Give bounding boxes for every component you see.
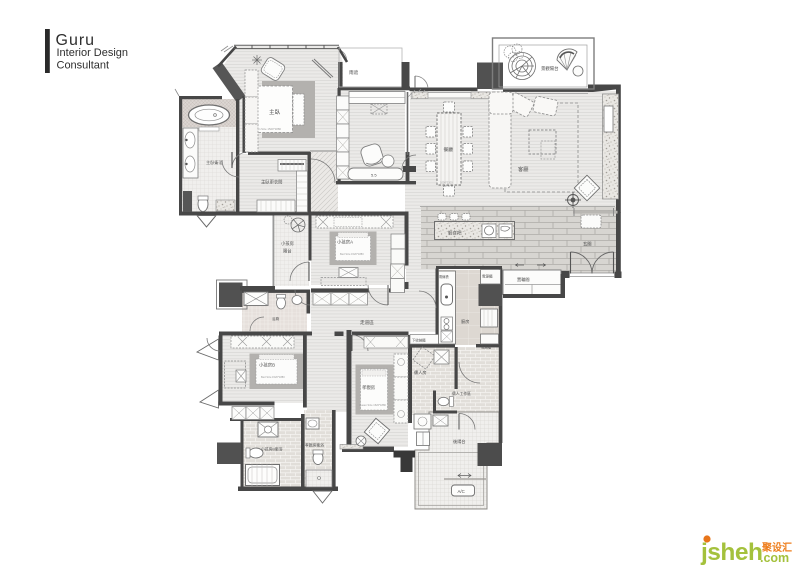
svg-text:傭人工作區: 傭人工作區 [452,391,471,396]
svg-text:.com: .com [760,551,789,565]
svg-text:5.5: 5.5 [371,173,377,178]
svg-text:小孩房A: 小孩房A [337,239,353,246]
svg-text:餐廳: 餐廳 [444,146,454,153]
svg-text:主臥衛浴: 主臥衛浴 [206,159,224,166]
svg-text:電源櫃: 電源櫃 [482,274,493,279]
svg-text:景觀陽台: 景觀陽台 [541,65,559,72]
svg-text:客廳: 客廳 [518,165,528,173]
svg-text:玄關: 玄關 [583,241,592,248]
svg-text:主臥: 主臥 [269,108,281,116]
svg-text:置輪間: 置輪間 [517,276,530,283]
svg-text:主臥更衣間: 主臥更衣間 [261,179,282,186]
svg-text:雨遮: 雨遮 [349,69,359,76]
svg-text:走道區: 走道區 [360,319,374,326]
svg-text:Consultant: Consultant [57,59,110,71]
svg-text:小孩房: 小孩房 [281,240,294,247]
svg-text:小孩房B衛浴: 小孩房B衛浴 [261,447,283,452]
svg-text:電線槽: 電線槽 [439,274,449,279]
svg-text:後陽台: 後陽台 [453,438,466,445]
svg-text:A/C: A/C [458,489,465,494]
svg-text:1000*2200: 1000*2200 [440,181,453,185]
svg-text:Bed Size 1520*1880: Bed Size 1520*1880 [261,375,285,379]
svg-text:Queen Size 1520*1880: Queen Size 1520*1880 [359,403,386,407]
svg-text:下收納櫃: 下收納櫃 [412,338,426,343]
svg-text:傭人房: 傭人房 [414,369,427,376]
svg-text:Interior Design: Interior Design [57,47,129,59]
svg-text:小孩房B: 小孩房B [259,362,275,369]
svg-text:jsheh: jsheh [700,539,763,565]
svg-text:輕食吧: 輕食吧 [448,230,462,237]
svg-text:孝親房衛浴: 孝親房衛浴 [305,443,324,448]
svg-text:孝親房: 孝親房 [362,384,376,391]
svg-text:浴廁: 浴廁 [272,316,280,321]
svg-text:Bed Size 1520*1880: Bed Size 1520*1880 [340,252,364,256]
svg-text:陽台: 陽台 [283,248,292,255]
svg-text:電器櫃: 電器櫃 [481,345,492,350]
svg-text:廚房: 廚房 [461,318,469,325]
